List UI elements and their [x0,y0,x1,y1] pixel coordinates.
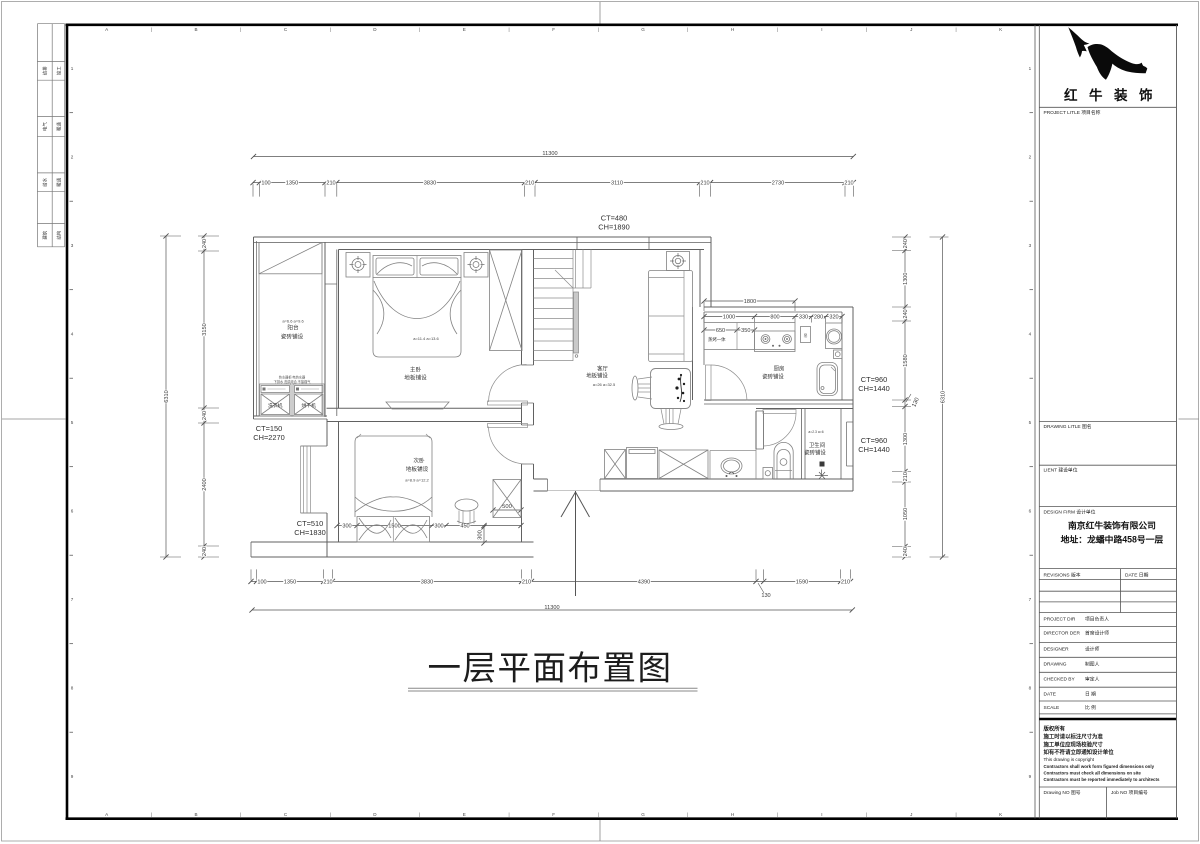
svg-text:施工单位应现场校验尺寸: 施工单位应现场校验尺寸 [1044,741,1104,749]
svg-text:CT=510: CT=510 [297,519,324,528]
svg-text:F: F [552,812,555,817]
svg-text:主卧: 主卧 [410,366,422,374]
svg-text:7: 7 [1029,597,1032,602]
svg-text:4: 4 [1029,332,1032,337]
svg-text:1580: 1580 [903,354,909,366]
svg-text:3150: 3150 [202,323,208,335]
svg-text:项目负责人: 项目负责人 [1085,616,1109,623]
svg-text:|: | [151,812,152,817]
svg-text:|: | [955,27,956,32]
svg-text:电气: 电气 [42,122,48,131]
svg-text:|: | [598,812,599,817]
svg-text:竣工: 竣工 [55,66,62,75]
svg-text:|: | [777,812,778,817]
svg-text:LIENT 建设单位: LIENT 建设单位 [1044,467,1078,474]
svg-text:E: E [463,27,466,32]
svg-text:2730: 2730 [772,181,784,187]
svg-text:240: 240 [202,239,208,248]
svg-text:CHECKED BY: CHECKED BY [1044,677,1076,683]
svg-text:比 例: 比 例 [1085,704,1096,711]
svg-text:PROJECT DIR: PROJECT DIR [1044,617,1076,623]
svg-text:210: 210 [700,181,709,187]
svg-text:G: G [641,27,645,32]
svg-text:1300: 1300 [903,433,909,445]
svg-text:1000: 1000 [723,315,735,321]
svg-text:9: 9 [71,774,74,779]
svg-text:吊: 吊 [804,333,808,338]
svg-text:6: 6 [1029,509,1032,514]
svg-text:240: 240 [202,411,208,420]
svg-text:|: | [955,812,956,817]
svg-text:CH=1830: CH=1830 [294,528,325,537]
svg-text:|: | [687,27,688,32]
svg-text:300: 300 [342,524,351,530]
svg-text:结构: 结构 [55,230,62,239]
svg-text:审定人: 审定人 [1085,676,1100,683]
svg-text:300: 300 [434,524,443,530]
svg-text:6310: 6310 [164,390,170,402]
svg-text:卫生间: 卫生间 [809,441,825,449]
svg-text:地板铺设: 地板铺设 [404,374,427,382]
svg-text:洗衣机: 洗衣机 [268,402,283,409]
svg-text:8: 8 [1029,686,1032,691]
svg-text:下排水 洗烘组合 不接煤气: 下排水 洗烘组合 不接煤气 [274,379,312,384]
svg-text:设计师: 设计师 [1085,646,1100,653]
svg-text:7: 7 [71,597,74,602]
svg-text:|: | [866,27,867,32]
svg-text:地板铺设: 地板铺设 [586,372,608,380]
svg-text:Drawing NO 图号: Drawing NO 图号 [1044,790,1081,796]
svg-text:|: | [330,812,331,817]
svg-text:210: 210 [522,579,531,585]
svg-text:DRAWING: DRAWING [1044,662,1067,668]
svg-text:2: 2 [71,155,74,160]
svg-text:330: 330 [799,315,808,321]
svg-text:210: 210 [525,181,534,187]
svg-text:首席设计师: 首席设计师 [1085,630,1109,637]
svg-text:如有不符请立即通知设计单位: 如有不符请立即通知设计单位 [1044,748,1115,756]
svg-text:地址：龙蟠中路458号一层: 地址：龙蟠中路458号一层 [1061,534,1164,545]
svg-text:热水器柜 电热水器: 热水器柜 电热水器 [279,375,306,380]
svg-text:瓷砖铺设: 瓷砖铺设 [281,333,304,341]
svg-text:给排: 给排 [42,66,49,75]
svg-text:蒸烤一体: 蒸烤一体 [708,336,726,343]
svg-text:REVISIONS 版本: REVISIONS 版本 [1044,572,1081,579]
svg-text:6310: 6310 [940,391,946,403]
svg-text:SCALE: SCALE [1044,705,1060,711]
svg-text:|: | [419,812,420,817]
svg-text:210: 210 [844,181,853,187]
svg-text:320: 320 [829,315,838,321]
svg-text:|: | [687,812,688,817]
svg-text:3830: 3830 [421,579,433,585]
svg-text:210: 210 [841,579,850,585]
svg-text:一层平面布置图: 一层平面布置图 [428,651,673,688]
svg-text:制图人: 制图人 [1085,661,1100,668]
svg-text:240: 240 [903,309,909,318]
svg-text:a=26 a=32.5: a=26 a=32.5 [593,382,616,387]
svg-text:H: H [731,812,734,817]
svg-text:E: E [463,812,466,817]
svg-text:CT=960: CT=960 [861,375,888,384]
svg-text:CH=1440: CH=1440 [858,384,889,393]
svg-text:210: 210 [326,181,335,187]
svg-text:|: | [419,27,420,32]
svg-text:|: | [508,812,509,817]
svg-text:DATE 日期: DATE 日期 [1125,573,1149,579]
svg-text:B: B [195,27,198,32]
svg-text:|: | [777,27,778,32]
svg-text:1: 1 [71,66,74,71]
svg-text:This drawing is copyright: This drawing is copyright [1044,757,1095,762]
svg-text:Contractors shall work form fi: Contractors shall work form figured dime… [1044,764,1155,769]
svg-text:280: 280 [814,315,823,321]
svg-text:3: 3 [1029,243,1032,248]
svg-text:130: 130 [761,593,770,599]
svg-text:a=11.4 a=13.6: a=11.4 a=13.6 [413,336,439,341]
svg-text:|: | [330,27,331,32]
svg-text:PROJECT LITLE 项目名称: PROJECT LITLE 项目名称 [1044,109,1101,116]
svg-text:|: | [866,812,867,817]
svg-text:240: 240 [202,547,208,556]
svg-text:I: I [821,812,822,817]
svg-text:800: 800 [770,315,779,321]
svg-text:11300: 11300 [542,151,557,157]
svg-text:给水: 给水 [42,177,49,186]
svg-text:Contractors must be reported i: Contractors must be reported immediately… [1044,777,1160,782]
svg-text:1300: 1300 [903,272,909,284]
svg-text:瓷砖铺设: 瓷砖铺设 [804,449,826,457]
svg-text:|: | [240,27,241,32]
svg-text:CH=1440: CH=1440 [858,445,889,454]
svg-text:5: 5 [1029,420,1032,425]
svg-text:CH=2270: CH=2270 [253,433,284,442]
svg-text:5: 5 [71,420,74,425]
svg-text:施工时请以标注尺寸为准: 施工时请以标注尺寸为准 [1044,733,1104,741]
svg-text:|: | [508,27,509,32]
svg-text:1800: 1800 [744,299,756,305]
svg-text:450: 450 [460,524,469,530]
svg-text:1050: 1050 [903,508,909,520]
svg-text:a=8.9 a=12.2: a=8.9 a=12.2 [405,478,429,483]
svg-text:240: 240 [903,239,909,248]
svg-text:4: 4 [71,332,74,337]
svg-text:CT=480: CT=480 [601,214,628,223]
svg-text:J: J [910,27,912,32]
svg-text:3830: 3830 [424,181,436,187]
svg-text:厨房: 厨房 [774,365,785,373]
svg-text:1590: 1590 [796,579,808,585]
svg-text:11300: 11300 [544,605,559,611]
svg-text:a=6.6 a=9.6: a=6.6 a=9.6 [282,319,304,324]
svg-text:1: 1 [1029,66,1032,71]
svg-text:烘干机: 烘干机 [301,402,316,409]
svg-text:CT=150: CT=150 [256,424,283,433]
svg-text:8: 8 [71,686,74,691]
svg-text:100: 100 [257,579,266,585]
svg-text:F: F [552,27,555,32]
svg-text:客厅: 客厅 [597,365,608,373]
svg-text:Contractors must check all dim: Contractors must check all dimensions on… [1044,771,1142,776]
svg-text:暖通: 暖通 [55,177,62,186]
svg-text:阳台: 阳台 [287,324,299,332]
svg-text:1350: 1350 [284,579,296,585]
svg-text:Job NO 项目编号: Job NO 项目编号 [1111,789,1148,796]
svg-text:CT=960: CT=960 [861,436,888,445]
svg-text:2: 2 [1029,155,1032,160]
svg-text:DATE: DATE [1044,691,1056,697]
svg-text:瓷砖铺设: 瓷砖铺设 [762,373,784,381]
svg-text:210: 210 [903,472,909,481]
svg-text:暖通: 暖通 [55,122,62,131]
svg-text:版权所有: 版权所有 [1043,725,1066,733]
svg-text:6: 6 [71,509,74,514]
svg-text:350: 350 [741,328,750,334]
svg-text:500: 500 [502,504,512,510]
svg-text:1500: 1500 [388,524,400,530]
svg-text:1350: 1350 [286,181,298,187]
svg-text:DESIGN FIRM 设计单位: DESIGN FIRM 设计单位 [1044,509,1096,516]
svg-text:|: | [598,27,599,32]
svg-text:日 期: 日 期 [1085,691,1096,697]
svg-text:G: G [641,812,645,817]
svg-text:300: 300 [478,530,484,540]
svg-text:9: 9 [1029,774,1032,779]
svg-text:南京红牛装饰有限公司: 南京红牛装饰有限公司 [1068,520,1156,531]
svg-text:DIRECTOR DER: DIRECTOR DER [1044,631,1081,637]
svg-text:4390: 4390 [638,579,650,585]
svg-text:100: 100 [261,181,270,187]
svg-text:H: H [731,27,734,32]
svg-text:J: J [910,812,912,817]
svg-text:CH=1890: CH=1890 [598,223,629,232]
svg-text:次卧: 次卧 [413,457,425,465]
svg-text:|: | [240,812,241,817]
svg-text:|: | [151,27,152,32]
svg-text:3110: 3110 [611,181,623,187]
svg-text:建筑: 建筑 [42,230,49,239]
svg-text:红牛装饰: 红牛装饰 [1064,87,1164,103]
svg-text:B: B [195,812,198,817]
svg-text:DRAWING LITLE 图名: DRAWING LITLE 图名 [1044,423,1092,430]
svg-text:3: 3 [71,243,74,248]
svg-text:a=2.3 a=6: a=2.3 a=6 [808,430,823,434]
svg-text:2400: 2400 [202,478,208,490]
svg-text:DESIGNER: DESIGNER [1044,647,1070,653]
svg-text:650: 650 [716,328,725,334]
svg-text:I: I [821,27,822,32]
svg-text:地板铺设: 地板铺设 [406,465,429,473]
svg-text:210: 210 [323,579,332,585]
svg-text:240: 240 [903,547,909,556]
